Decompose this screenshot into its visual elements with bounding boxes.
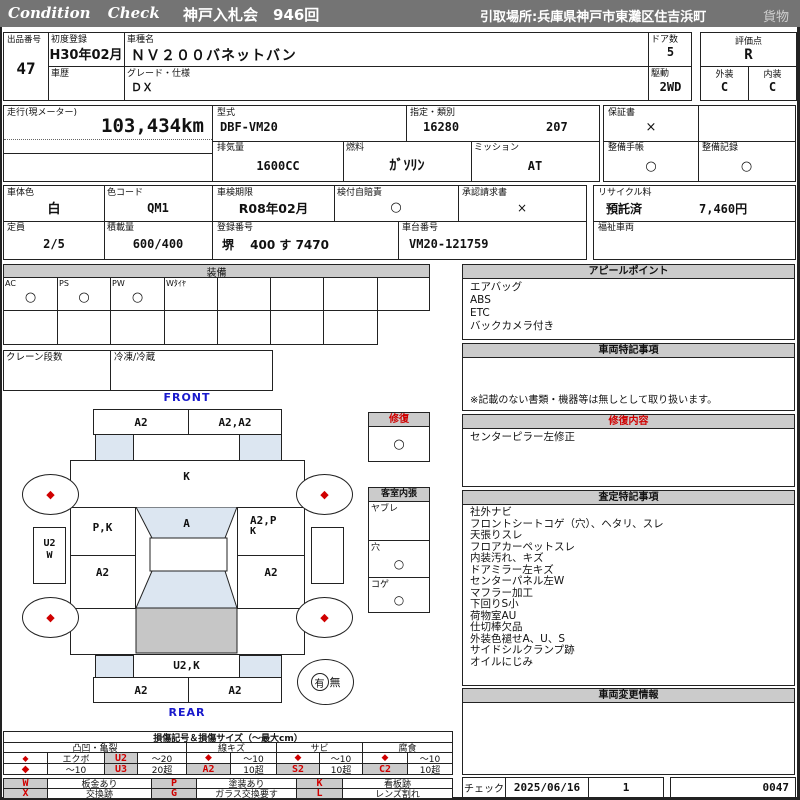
divider xyxy=(238,555,304,556)
model-name-label: 車種名 xyxy=(127,35,154,45)
equip-cell-empty xyxy=(57,310,111,345)
spare-tire-badge: 有 無 xyxy=(297,659,354,705)
equipment-title: 装備 xyxy=(3,264,430,278)
damage-left-front-door: P,K xyxy=(71,521,134,533)
damage-right-front-door-2: K xyxy=(250,526,256,537)
roof-shape xyxy=(150,538,227,571)
trim-row-hole-mark: ○ xyxy=(369,556,429,572)
wheel-damage-mark: ◆ xyxy=(320,611,328,624)
model-name: ＮＶ２００バネットバン xyxy=(131,45,297,65)
interior-grade: C xyxy=(749,80,796,94)
check-count-cell: 1 xyxy=(588,777,664,798)
legend-code-l-label: レンズ割れ xyxy=(342,788,453,799)
score-box: 評価点 R 外装 C 内装 C xyxy=(700,32,797,101)
lot-number: 47 xyxy=(4,58,48,78)
legend-code-g: G xyxy=(151,788,197,799)
equip-mark: ○ xyxy=(111,287,164,307)
fuel-label: 燃料 xyxy=(346,143,364,153)
lot-number-label: 出品番号 xyxy=(7,35,41,45)
damage-windshield: A xyxy=(135,517,238,529)
maintenance-record-mark: ○ xyxy=(698,157,795,175)
legend-scratch-r2-size: 10超 xyxy=(230,763,277,775)
exterior-grade: C xyxy=(701,80,748,94)
chassis-label: 車台番号 xyxy=(402,223,438,233)
legend-rust-r2-size: 10超 xyxy=(319,763,363,775)
damage-hood: K xyxy=(135,470,238,482)
inspection-label: 車検期限 xyxy=(217,188,253,198)
model-code-box: 型式 DBF-VM20 指定・類別 16280 207 排気量 1600CC 燃… xyxy=(212,105,600,182)
doors-label: ドア数 xyxy=(651,35,678,45)
body-color-label: 車体色 xyxy=(7,188,34,198)
chassis-number: VM20-121759 xyxy=(409,237,488,251)
rear-right-corner-panel xyxy=(239,655,282,678)
divider xyxy=(398,221,399,259)
assessment-item: サイドシルクランプ跡 xyxy=(470,645,575,656)
grade-label: グレード・仕様 xyxy=(127,69,190,79)
left-mirror-box: U2 W xyxy=(33,527,66,584)
cargo-area-shape xyxy=(136,608,237,653)
divider xyxy=(71,555,135,556)
legend-code-a2: A2 xyxy=(186,763,231,775)
title-bar: Condition Check 神戸入札会 946回 引取場所:兵庫県神戸市東灘… xyxy=(0,0,800,27)
legend-dent-r2-label: ～10 xyxy=(47,763,105,775)
score-value: R xyxy=(701,47,796,63)
divider xyxy=(369,577,429,578)
warranty-mark: × xyxy=(604,119,698,135)
repair-detail-panel: 修復内容 センターピラー左修正 xyxy=(462,414,795,487)
interior-label: 内装 xyxy=(749,68,796,78)
vehicle-notes-title: 車両特記事項 xyxy=(463,344,794,358)
change-info-panel: 車両変更情報 xyxy=(462,688,795,775)
legend-code-x-label: 交換跡 xyxy=(47,788,152,799)
diamond-icon: ◆ xyxy=(3,763,48,775)
equip-cell-empty xyxy=(217,277,271,311)
assessment-item: 内装汚れ、キズ xyxy=(470,553,544,564)
equip-cell-ac: AC ○ xyxy=(3,277,58,311)
equip-cell-empty xyxy=(323,310,378,345)
inspection-box: 車検期限 R08年02月 検付自賠責 ○ 承認請求書 × 登録番号 堺 400 … xyxy=(212,185,587,260)
mileage-box: 走行(現メーター) 103,434km xyxy=(3,105,213,182)
check-label-cell: チェック xyxy=(462,777,506,798)
appeal-item: バックカメラ付き xyxy=(470,321,554,332)
load-capacity: 600/400 xyxy=(104,236,212,251)
insurance-label: 検付自賠責 xyxy=(337,188,382,198)
maintenance-book-mark: ○ xyxy=(604,157,698,175)
warranty-label: 保証書 xyxy=(608,108,635,118)
vehicle-notes-panel: 車両特記事項 ※記載のない書類・機器等は無しとして取り扱います。 xyxy=(462,343,795,411)
maintenance-record-label: 整備記録 xyxy=(702,143,738,153)
trim-row-burn-mark: ○ xyxy=(369,592,429,608)
class-label: 指定・類別 xyxy=(410,108,455,118)
equip-cell-empty xyxy=(270,310,324,345)
trim-row-burn-label: コゲ xyxy=(371,580,389,590)
body-color: 白 xyxy=(4,199,104,216)
welfare-label: 福祉車両 xyxy=(598,223,634,233)
assessment-panel: 査定特記事項 社外ナビ フロントシートコゲ（穴）、ヘタリ、スレ 天張りスレ フロ… xyxy=(462,490,795,686)
damage-right-mid-panel: A2 xyxy=(238,566,304,578)
repair-mark: ○ xyxy=(369,433,429,455)
maintenance-book-label: 整備手帳 xyxy=(608,143,644,153)
spare-absent-mark: 無 xyxy=(330,674,341,690)
trim-row-tear-label: ヤブレ xyxy=(371,504,398,514)
grade-value: ＤＸ xyxy=(131,79,153,95)
displacement-label: 排気量 xyxy=(217,143,244,153)
brand-logo: Condition Check xyxy=(8,4,160,22)
assessment-title: 査定特記事項 xyxy=(463,491,794,505)
divider xyxy=(213,141,599,142)
reefer-box: 冷凍/冷蔵 xyxy=(110,350,273,391)
registration-number: 堺 400 す 7470 xyxy=(222,236,329,253)
drive-label: 駆動 xyxy=(651,69,669,79)
divider xyxy=(213,221,586,222)
class-sub-number: 207 xyxy=(546,120,568,134)
damage-left-mid-panel: A2 xyxy=(71,566,134,578)
divider xyxy=(48,66,692,67)
recycle-box: リサイクル料 預託済 7,460円 福祉車両 xyxy=(593,185,796,260)
transmission: AT xyxy=(471,158,599,174)
equip-cell-ps: PS ○ xyxy=(57,277,111,311)
documents-box: 保証書 × 整備手帳 ○ 整備記録 ○ xyxy=(603,105,796,182)
divider xyxy=(604,141,795,142)
transmission-label: ミッション xyxy=(474,143,519,153)
legend-code-x: X xyxy=(3,788,48,799)
recycle-label: リサイクル料 xyxy=(598,188,652,198)
rear-left-wheel: ◆ xyxy=(22,597,79,638)
repair-box: 修復 ○ xyxy=(368,412,430,462)
wheel-damage-mark: ◆ xyxy=(320,488,328,501)
change-info-title: 車両変更情報 xyxy=(463,689,794,703)
equip-cell-empty xyxy=(110,310,165,345)
capacity: 2/5 xyxy=(4,236,104,251)
pickup-location: 引取場所:兵庫県神戸市東灘区住吉浜町 xyxy=(480,6,706,25)
color-code-label: 色コード xyxy=(107,188,143,198)
legend-code-c2: C2 xyxy=(362,763,408,775)
rear-bumper: A2 A2 xyxy=(93,677,282,703)
appeal-points-panel: アピールポイント エアバッグ ABS ETC バックカメラ付き xyxy=(462,264,795,340)
interior-trim-title: 客室内張 xyxy=(369,488,429,502)
approval-label: 承認請求書 xyxy=(462,188,507,198)
cargo-type: 貨物 xyxy=(763,6,789,25)
displacement: 1600CC xyxy=(213,158,343,174)
appeal-item: ABS xyxy=(470,295,491,306)
equip-cell-wtire: Wﾀｲﾔ xyxy=(164,277,218,311)
mileage-value: 103,434km xyxy=(12,115,204,137)
interior-trim-box: 客室内張 ヤブレ 穴 ○ コゲ ○ xyxy=(368,487,430,613)
main-info-table: 出品番号 47 初度登録 H30年02月 車種名 ＮＶ２００バネットバン ドア数… xyxy=(3,32,692,101)
equip-cell-empty xyxy=(323,277,378,311)
insurance-mark: ○ xyxy=(334,199,458,216)
check-date-cell: 2025/06/16 xyxy=(505,777,589,798)
assessment-item: 天張りスレ xyxy=(470,530,523,541)
rear-right-wheel: ◆ xyxy=(296,597,353,638)
legend-dent-r2-size: 20超 xyxy=(137,763,187,775)
vehicle-notes-disclaimer: ※記載のない書類・機器等は無しとして取り扱います。 xyxy=(470,395,717,406)
model-code-label: 型式 xyxy=(217,108,235,118)
repair-detail-item: センターピラー左修正 xyxy=(470,432,575,443)
first-reg: H30年02月 xyxy=(48,45,124,61)
assessment-item: センターパネル左W xyxy=(470,576,564,587)
legend-code-l: L xyxy=(296,788,343,799)
right-mirror-box xyxy=(311,527,344,584)
history-label: 車歴 xyxy=(51,69,69,79)
assessment-item: オイルにじみ xyxy=(470,657,533,668)
legend-code-s2: S2 xyxy=(276,763,320,775)
wheel-damage-mark: ◆ xyxy=(46,611,54,624)
equip-label: Wﾀｲﾔ xyxy=(166,279,186,289)
front-right-corner-panel xyxy=(239,434,282,461)
fuel-type: ｶﾞｿﾘﾝ xyxy=(343,156,471,174)
divider xyxy=(4,139,212,140)
appeal-points-title: アピールポイント xyxy=(463,265,794,279)
model-code: DBF-VM20 xyxy=(220,120,278,134)
approval-mark: × xyxy=(458,200,586,216)
divider xyxy=(594,221,795,222)
equip-mark: ○ xyxy=(4,287,57,307)
assessment-item: 下回りS小 xyxy=(470,599,519,610)
front-left-wheel: ◆ xyxy=(22,474,79,515)
divider xyxy=(406,106,407,141)
assessment-item: 仕切棒欠品 xyxy=(470,622,523,633)
assessment-item: 社外ナビ xyxy=(470,507,512,518)
rear-label: REAR xyxy=(152,706,222,718)
damage-front-bumper-left: A2 xyxy=(94,415,188,429)
trim-row-hole-label: 穴 xyxy=(371,543,380,553)
color-code: QM1 xyxy=(104,200,212,215)
exterior-label: 外装 xyxy=(701,68,748,78)
damage-rear-panel: U2,K xyxy=(133,659,240,671)
legend-corrosion-r2-size: 10超 xyxy=(407,763,453,775)
equip-cell-empty xyxy=(164,310,218,345)
drive-value: 2WD xyxy=(648,80,693,94)
front-left-corner-panel xyxy=(95,434,134,461)
class-number: 16280 xyxy=(423,120,459,134)
recycle-fee: 7,460円 xyxy=(699,200,747,217)
equip-cell-empty xyxy=(3,310,58,345)
auction-sheet: Condition Check 神戸入札会 946回 引取場所:兵庫県神戸市東灘… xyxy=(0,0,800,800)
damage-rear-bumper-left: A2 xyxy=(94,683,188,697)
damage-rear-bumper-right: A2 xyxy=(189,683,281,697)
auction-title: 神戸入札会 946回 xyxy=(183,4,319,25)
divider xyxy=(4,221,212,222)
rear-left-corner-panel xyxy=(95,655,134,678)
load-label: 積載量 xyxy=(107,223,134,233)
color-capacity-box: 車体色 白 色コード QM1 定員 2/5 積載量 600/400 xyxy=(3,185,213,260)
front-right-wheel: ◆ xyxy=(296,474,353,515)
divider xyxy=(369,540,429,541)
legend-code-g-label: ガラス交換要す xyxy=(196,788,297,799)
equip-cell-pw: PW ○ xyxy=(110,277,165,311)
equip-cell-empty xyxy=(377,277,430,311)
crane-label: クレーン段数 xyxy=(6,353,63,363)
left-edge xyxy=(0,27,2,798)
crane-box: クレーン段数 xyxy=(3,350,111,391)
inspection-date: R08年02月 xyxy=(213,199,334,215)
reefer-label: 冷凍/冷蔵 xyxy=(114,353,155,363)
equip-cell-empty xyxy=(217,310,271,345)
spare-present-mark: 有 xyxy=(311,673,329,691)
appeal-item: ETC xyxy=(470,308,490,319)
appeal-item: エアバッグ xyxy=(470,282,522,293)
rear-window-shape xyxy=(136,571,237,608)
damage-left-mirror-2: W xyxy=(34,550,65,561)
legend-code-u3: U3 xyxy=(104,763,138,775)
serial-number-cell: 0047 xyxy=(670,777,796,798)
damage-front-bumper-right: A2,A2 xyxy=(189,415,281,429)
front-label: FRONT xyxy=(152,391,222,403)
divider xyxy=(4,153,212,154)
front-bumper: A2 A2,A2 xyxy=(93,409,282,435)
equip-mark: ○ xyxy=(58,287,110,307)
equip-cell-empty xyxy=(270,277,324,311)
wheel-damage-mark: ◆ xyxy=(46,488,54,501)
score-label: 評価点 xyxy=(701,35,796,45)
damage-left-mirror-1: U2 xyxy=(34,538,65,549)
registration-label: 登録番号 xyxy=(217,223,253,233)
recycle-status: 預託済 xyxy=(606,200,642,217)
repair-detail-title: 修復内容 xyxy=(463,415,794,429)
capacity-label: 定員 xyxy=(7,223,25,233)
repair-title: 修復 xyxy=(369,413,429,427)
doors-count: 5 xyxy=(648,45,693,59)
